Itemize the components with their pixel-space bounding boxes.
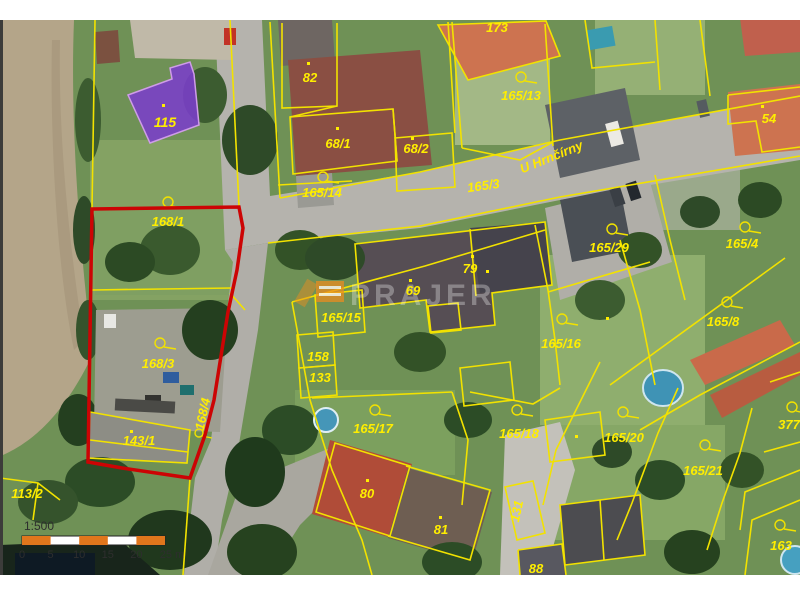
scale-tick-20: 20: [130, 549, 142, 561]
parcel-label-143-1: 143/1: [123, 433, 156, 448]
parcel-label-68-2: 68/2: [403, 141, 429, 156]
parcel-label-81: 81: [434, 522, 448, 537]
parcel-label-165-8: 165/8: [707, 314, 740, 329]
building-shed-topleft: [95, 30, 120, 64]
pool-1: [314, 408, 338, 432]
parcel-label-158: 158: [307, 349, 329, 364]
parcel-label-115: 115: [154, 114, 177, 130]
building-115-dot: [162, 104, 165, 107]
parcel-label-163: 163: [770, 538, 792, 553]
parcel-label-165-16: 165/16: [541, 336, 582, 351]
drive-topleft: [130, 20, 232, 60]
parcel-label-173: 173: [486, 20, 508, 35]
parcel-label-80: 80: [360, 486, 375, 501]
parcel-label-165-14: 165/14: [302, 185, 343, 200]
parcel-label-165-4: 165/4: [726, 236, 759, 251]
scale-tick-25m: 25 m: [160, 549, 184, 561]
cadastral-map-svg[interactable]: PRAJER 115 173 82 68/1 68/2 165/14 165/3…: [0, 0, 800, 600]
parcel-label-165-18: 165/18: [499, 426, 540, 441]
scale-ratio-label: 1:500: [24, 519, 54, 533]
parcel-label-69: 69: [406, 283, 421, 298]
parcel-label-113-2: 113/2: [11, 486, 43, 501]
parcel-label-165-15: 165/15: [321, 310, 362, 325]
parcel-label-377: 377: [778, 417, 800, 432]
pool-2: [643, 370, 683, 406]
parcel-label-168-1: 168/1: [152, 214, 185, 229]
scale-tick-5: 5: [48, 549, 54, 561]
scale-tick-10: 10: [73, 549, 85, 561]
parcel-label-68-1: 68/1: [325, 136, 350, 151]
parcel-label-165-29: 165/29: [589, 240, 630, 255]
scale-tick-0: 0: [19, 549, 25, 561]
parcel-label-165-20: 165/20: [604, 430, 645, 445]
parcel-label-168-3: 168/3: [142, 356, 175, 371]
map-canvas[interactable]: PRAJER 115 173 82 68/1 68/2 165/14 165/3…: [0, 0, 800, 600]
scale-tick-15: 15: [102, 549, 114, 561]
parcel-label-88: 88: [529, 561, 544, 576]
parcel-label-165-21: 165/21: [683, 463, 723, 478]
parcel-label-82: 82: [303, 70, 318, 85]
parcel-label-79: 79: [463, 261, 478, 276]
parcel-label-165-13: 165/13: [501, 88, 542, 103]
parcel-label-165-17: 165/17: [353, 421, 394, 436]
parcel-label-54: 54: [762, 111, 777, 126]
watermark-text: PRAJER: [350, 279, 496, 312]
parcel-label-133: 133: [309, 370, 331, 385]
